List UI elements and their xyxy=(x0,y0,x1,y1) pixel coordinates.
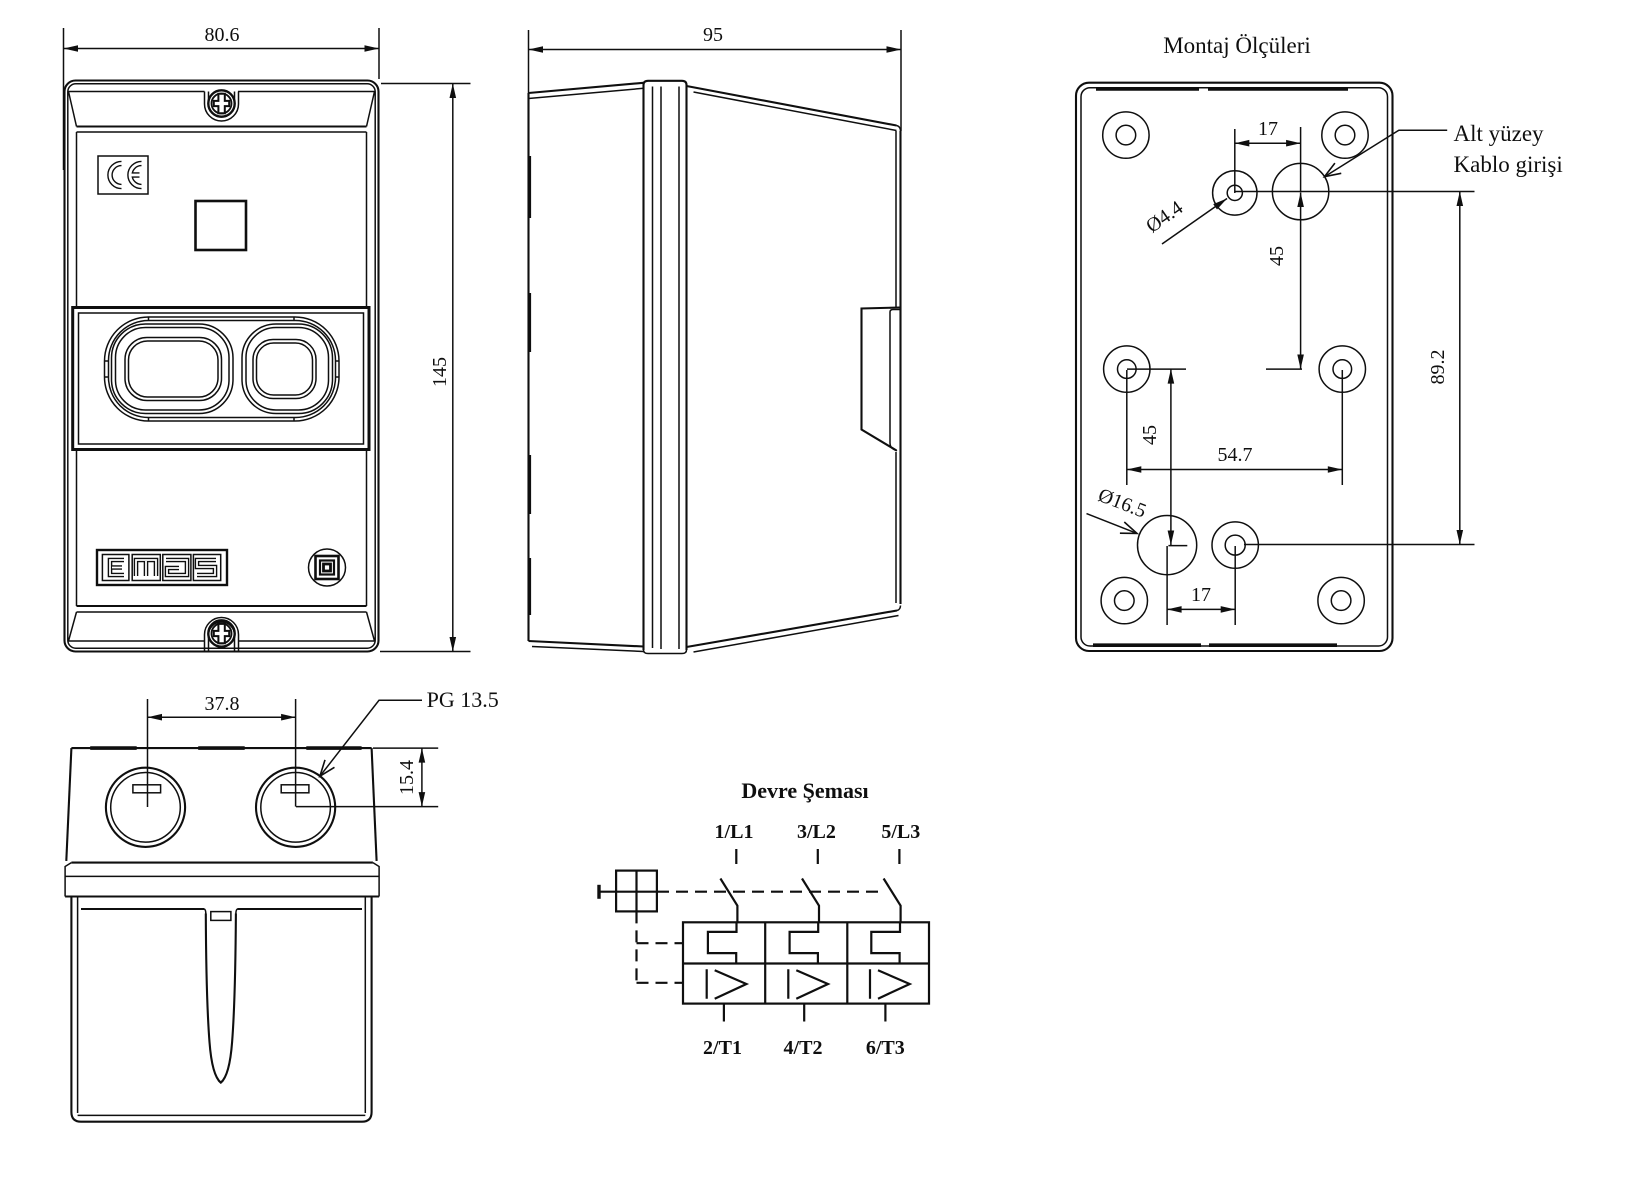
svg-text:54.7: 54.7 xyxy=(1218,444,1253,466)
svg-text:Montaj Ölçüleri: Montaj Ölçüleri xyxy=(1163,33,1311,58)
svg-text:3/L2: 3/L2 xyxy=(797,821,836,843)
svg-text:1/L1: 1/L1 xyxy=(715,821,754,843)
svg-text:45: 45 xyxy=(1139,425,1161,445)
svg-text:45: 45 xyxy=(1266,246,1288,266)
svg-text:PG 13.5: PG 13.5 xyxy=(427,687,499,712)
svg-text:4/T2: 4/T2 xyxy=(784,1037,823,1059)
svg-text:Alt yüzey: Alt yüzey xyxy=(1454,121,1545,146)
svg-text:Ø16.5: Ø16.5 xyxy=(1095,484,1149,522)
svg-text:5/L3: 5/L3 xyxy=(881,821,920,843)
svg-text:95: 95 xyxy=(703,24,723,46)
svg-text:17: 17 xyxy=(1258,118,1278,140)
svg-text:17: 17 xyxy=(1191,584,1211,606)
svg-text:6/T3: 6/T3 xyxy=(866,1037,905,1059)
svg-text:80.6: 80.6 xyxy=(205,24,240,46)
svg-text:37.8: 37.8 xyxy=(205,693,240,715)
svg-text:Kablo girişi: Kablo girişi xyxy=(1454,152,1563,177)
svg-text:Devre Şeması: Devre Şeması xyxy=(741,778,868,803)
svg-text:145: 145 xyxy=(429,357,451,387)
svg-text:89.2: 89.2 xyxy=(1427,350,1449,385)
svg-text:2/T1: 2/T1 xyxy=(703,1037,742,1059)
svg-text:15.4: 15.4 xyxy=(396,760,418,795)
